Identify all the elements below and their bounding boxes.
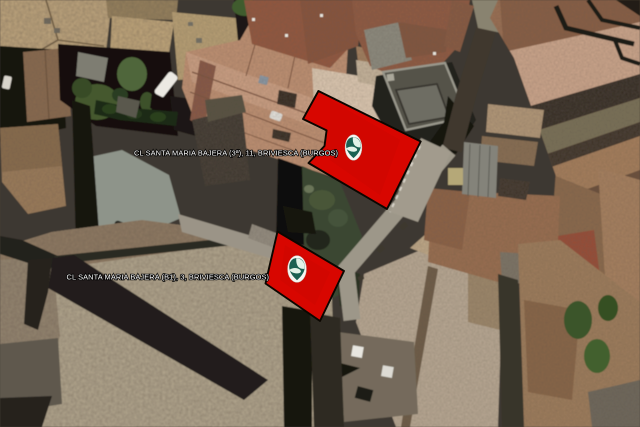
svg-text:CL SANTA MARIA BAJERA (B1), 3,: CL SANTA MARIA BAJERA (B1), 3, BRIVIESCA…: [67, 273, 270, 282]
svg-text:CL SANTA MARIA BAJERA (3ª), 11: CL SANTA MARIA BAJERA (3ª), 11, BRIVIESC…: [134, 149, 338, 158]
